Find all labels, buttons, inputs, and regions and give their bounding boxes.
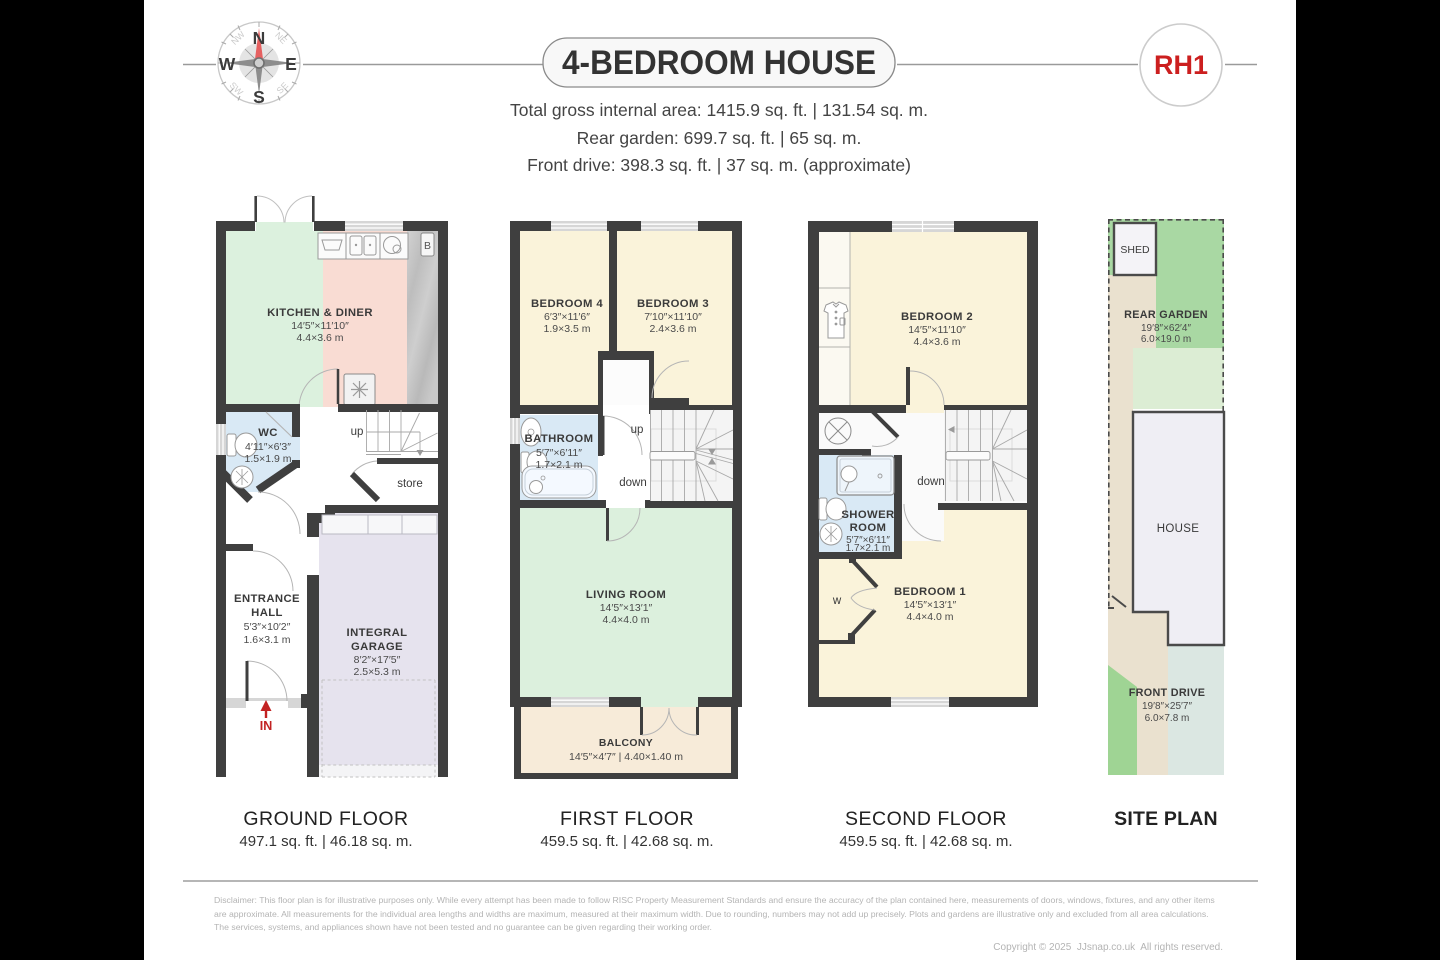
svg-text:RH1: RH1 <box>1154 50 1208 80</box>
svg-text:W: W <box>219 54 236 74</box>
svg-text:N: N <box>253 28 266 48</box>
svg-text:down: down <box>619 477 647 489</box>
svg-text:4-BEDROOM HOUSE: 4-BEDROOM HOUSE <box>562 44 876 82</box>
svg-text:KITCHEN & DINER: KITCHEN & DINER <box>267 307 373 319</box>
svg-text:19′8″×25′7″: 19′8″×25′7″ <box>1142 701 1192 712</box>
svg-text:ENTRANCE: ENTRANCE <box>234 593 300 605</box>
svg-text:HALL: HALL <box>251 607 283 619</box>
svg-text:REAR GARDEN: REAR GARDEN <box>1124 309 1208 321</box>
svg-text:store: store <box>397 478 423 490</box>
svg-text:SITE PLAN: SITE PLAN <box>1114 808 1218 830</box>
svg-text:up: up <box>631 424 644 436</box>
svg-text:14′5″×13′1″: 14′5″×13′1″ <box>904 599 957 611</box>
svg-text:The services, systems, and app: The services, systems, and appliances sh… <box>214 922 712 932</box>
svg-text:BEDROOM 1: BEDROOM 1 <box>894 586 966 598</box>
svg-text:BEDROOM 2: BEDROOM 2 <box>901 311 973 323</box>
svg-text:1.7×2.1 m: 1.7×2.1 m <box>536 459 583 471</box>
svg-text:4.4×4.0 m: 4.4×4.0 m <box>907 611 954 623</box>
svg-text:2.4×3.6 m: 2.4×3.6 m <box>650 323 697 335</box>
svg-text:BALCONY: BALCONY <box>599 738 653 749</box>
svg-text:SHED: SHED <box>1120 244 1150 256</box>
svg-text:6.0×19.0 m: 6.0×19.0 m <box>1141 334 1191 345</box>
svg-text:4.4×3.6 m: 4.4×3.6 m <box>914 336 961 348</box>
svg-text:14′5″×4′7″ | 4.40×1.40 m: 14′5″×4′7″ | 4.40×1.40 m <box>569 751 683 763</box>
svg-text:4.4×4.0 m: 4.4×4.0 m <box>603 614 650 626</box>
svg-text:1.6×3.1 m: 1.6×3.1 m <box>244 634 291 646</box>
svg-text:Front drive: 398.3 sq. ft. | 3: Front drive: 398.3 sq. ft. | 37 sq. m. (… <box>527 155 911 175</box>
svg-text:S: S <box>253 87 265 107</box>
svg-text:459.5 sq. ft. | 42.68 sq. m.: 459.5 sq. ft. | 42.68 sq. m. <box>540 833 713 850</box>
svg-text:up: up <box>351 426 364 438</box>
svg-text:5′3″×10′2″: 5′3″×10′2″ <box>244 621 291 633</box>
svg-text:497.1 sq. ft. | 46.18 sq. m.: 497.1 sq. ft. | 46.18 sq. m. <box>239 833 412 850</box>
svg-text:ROOM: ROOM <box>850 522 887 534</box>
svg-text:LIVING ROOM: LIVING ROOM <box>586 589 666 601</box>
svg-text:E: E <box>285 54 297 74</box>
svg-text:SECOND FLOOR: SECOND FLOOR <box>845 808 1007 830</box>
svg-text:BATHROOM: BATHROOM <box>525 433 594 445</box>
svg-text:Copyright © 2025 JJsnap.co.uk: Copyright © 2025 JJsnap.co.uk All rights… <box>993 942 1223 953</box>
svg-text:FRONT DRIVE: FRONT DRIVE <box>1129 687 1205 699</box>
svg-text:19′8″×62′4″: 19′8″×62′4″ <box>1141 323 1191 334</box>
svg-text:14′5″×13′1″: 14′5″×13′1″ <box>600 602 653 614</box>
svg-text:Disclaimer: This floor plan is: Disclaimer: This floor plan is for illus… <box>214 895 1215 905</box>
svg-text:GARAGE: GARAGE <box>351 641 403 653</box>
svg-text:8′2″×17′5″: 8′2″×17′5″ <box>354 654 401 666</box>
svg-text:14′5″×11′10″: 14′5″×11′10″ <box>908 324 966 336</box>
svg-text:Rear garden: 699.7 sq. ft. | 6: Rear garden: 699.7 sq. ft. | 65 sq. m. <box>577 128 862 148</box>
svg-text:459.5 sq. ft. | 42.68 sq. m.: 459.5 sq. ft. | 42.68 sq. m. <box>839 833 1012 850</box>
svg-text:7′10″×11′10″: 7′10″×11′10″ <box>644 311 702 323</box>
svg-text:14′5″×11′10″: 14′5″×11′10″ <box>291 320 349 332</box>
svg-text:4′11″×6′3″: 4′11″×6′3″ <box>245 441 291 453</box>
svg-text:6.0×7.8 m: 6.0×7.8 m <box>1145 713 1190 724</box>
svg-text:1.5×1.9 m: 1.5×1.9 m <box>245 453 292 465</box>
svg-text:GROUND FLOOR: GROUND FLOOR <box>243 808 408 830</box>
svg-text:are approximate. All measureme: are approximate. All measurements for th… <box>214 909 1209 919</box>
svg-text:down: down <box>917 476 945 488</box>
svg-text:1.9×3.5 m: 1.9×3.5 m <box>544 323 591 335</box>
svg-text:2.5×5.3 m: 2.5×5.3 m <box>354 666 401 678</box>
svg-text:5′7″×6′11″: 5′7″×6′11″ <box>536 447 582 459</box>
svg-text:BEDROOM 4: BEDROOM 4 <box>531 298 603 310</box>
svg-text:Total gross internal area: 141: Total gross internal area: 1415.9 sq. ft… <box>510 100 928 120</box>
svg-text:w: w <box>832 595 842 607</box>
svg-text:SHOWER: SHOWER <box>841 509 894 521</box>
svg-text:1.7×2.1 m: 1.7×2.1 m <box>846 543 891 554</box>
svg-text:4.4×3.6 m: 4.4×3.6 m <box>297 332 344 344</box>
svg-text:B: B <box>424 240 431 252</box>
svg-text:IN: IN <box>260 719 273 733</box>
svg-text:INTEGRAL: INTEGRAL <box>347 627 408 639</box>
svg-text:BEDROOM 3: BEDROOM 3 <box>637 298 709 310</box>
svg-text:FIRST FLOOR: FIRST FLOOR <box>560 808 694 830</box>
svg-text:6′3″×11′6″: 6′3″×11′6″ <box>544 311 590 323</box>
svg-text:WC: WC <box>258 427 278 439</box>
svg-text:HOUSE: HOUSE <box>1157 523 1199 535</box>
